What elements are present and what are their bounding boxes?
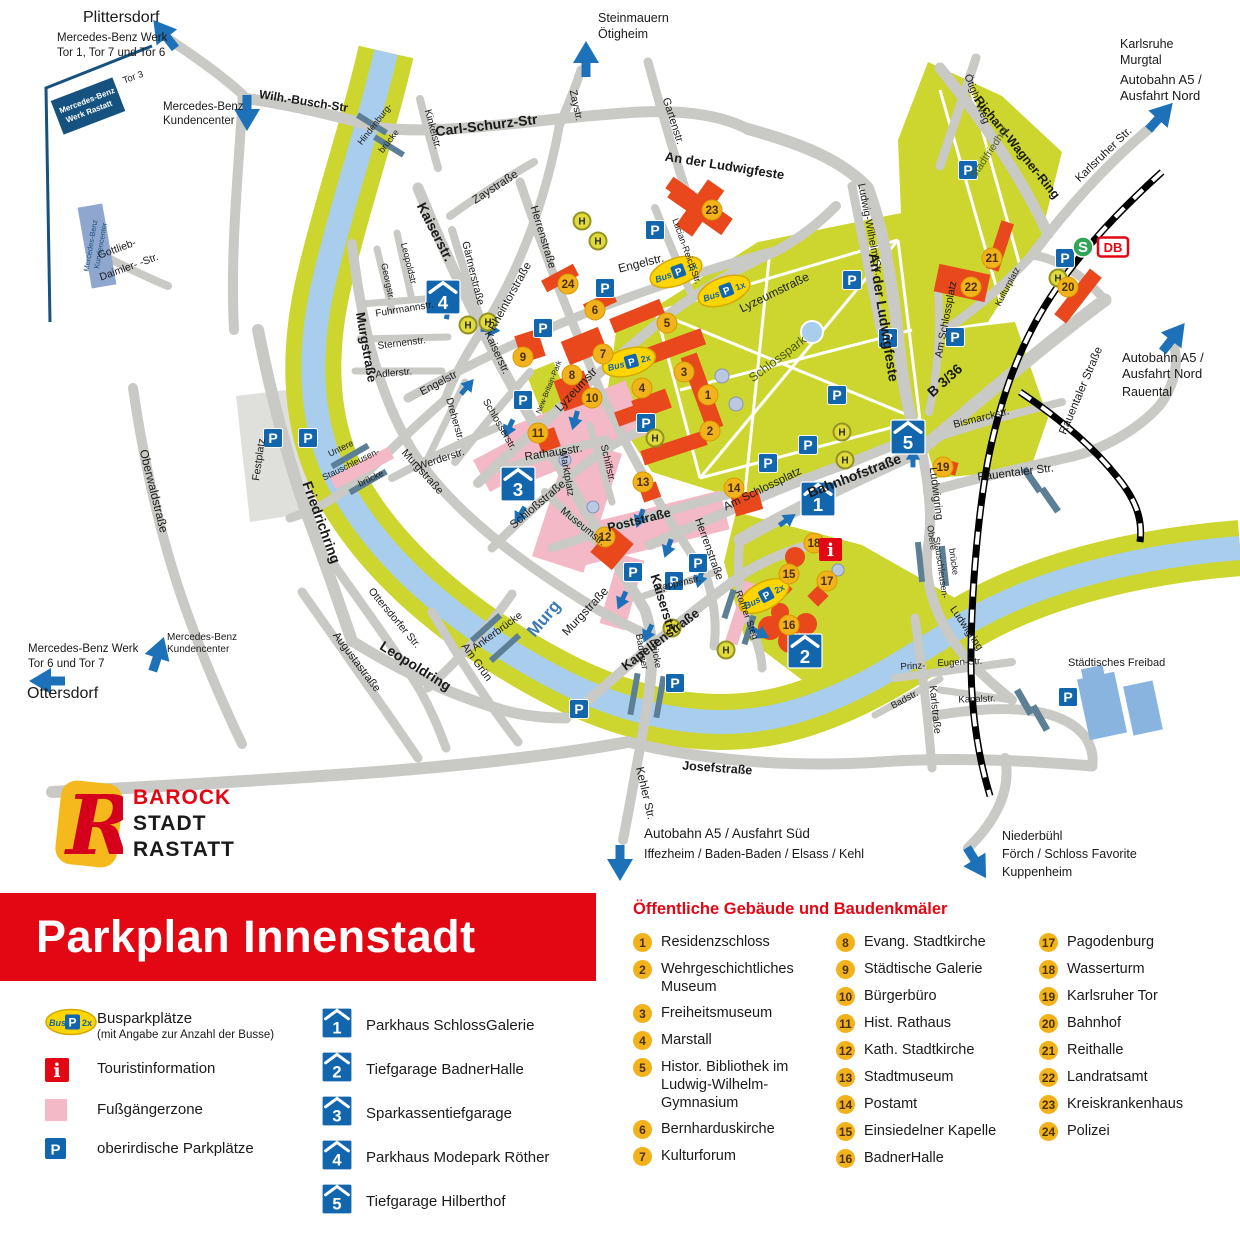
street-label-8: Zaystraße — [470, 168, 520, 206]
building-label: Histor. Bibliothek im Ludwig-Wilhelm-Gym… — [661, 1058, 822, 1112]
building-list-item-15: 15Einsiedelner Kapelle — [836, 1122, 1025, 1141]
garage-label: Sparkassentiefgarage — [366, 1105, 512, 1122]
svg-text:2x: 2x — [82, 1018, 92, 1028]
parking-icon-12: P — [843, 271, 862, 290]
building-list-item-13: 13Stadtmuseum — [836, 1068, 1025, 1087]
building-number-badge: 21 — [1039, 1041, 1058, 1060]
parking-icon-2: P — [514, 391, 533, 410]
sbahn-letter: S — [1078, 239, 1088, 256]
building-list-item-1: 1Residenzschloss — [633, 933, 822, 952]
road-plittersdorf — [170, 40, 243, 95]
badge-number: 10 — [586, 393, 599, 405]
building-badge-17: 17 — [817, 571, 837, 591]
building-badge-5: 5 — [657, 313, 677, 333]
street-label-79: Kanalstr. — [958, 693, 995, 705]
bus-stop-letter: H — [594, 237, 601, 248]
garage-legend-item-1: 1Parkhaus SchlossGalerie — [322, 1008, 582, 1043]
parking-letter: P — [950, 329, 959, 345]
destination-label-5: Steinmauern — [598, 11, 669, 25]
badge-number: 2 — [707, 426, 713, 438]
building-badge-9: 9 — [513, 347, 533, 367]
building-number-badge: 19 — [1039, 987, 1058, 1006]
parking-icon-11: P — [570, 700, 589, 719]
building-number-badge: 14 — [836, 1095, 855, 1114]
building-label: Wasserturm — [1067, 960, 1145, 979]
destination-label-23: Kundencenter — [167, 644, 230, 655]
bus-stop-icon-1: H — [590, 233, 607, 250]
parking-icon-9: P — [689, 554, 708, 573]
parking-letter: P — [641, 415, 650, 431]
building-number-badge: 23 — [1039, 1095, 1058, 1114]
building-badge-15: 15 — [779, 564, 799, 584]
building-label: Kath. Stadtkirche — [864, 1041, 974, 1060]
building-badge-3: 3 — [674, 362, 694, 382]
db-letters: DB — [1104, 240, 1123, 255]
parking-garage-icon-2: 2 — [788, 634, 822, 668]
building-list-item-2: 2Wehrgeschichtliches Museum — [633, 960, 822, 996]
parking-letter: P — [518, 392, 527, 408]
building-badge-23: 23 — [702, 200, 722, 220]
page-title: Parkplan Innenstadt — [0, 893, 596, 981]
building-list-item-6: 6Bernharduskirche — [633, 1120, 822, 1139]
destination-label-17: Förch / Schloss Favorite — [1002, 847, 1137, 861]
legend-garages: 1Parkhaus SchlossGalerie2Tiefgarage Badn… — [322, 1008, 582, 1228]
building-number-badge: 16 — [836, 1149, 855, 1168]
destination-label-9: Autobahn A5 / — [1120, 72, 1202, 87]
garage-label: Tiefgarage Hilberthof — [366, 1193, 506, 1210]
garage-number: 5 — [903, 432, 913, 453]
svg-text:P: P — [68, 1016, 76, 1030]
badge-number: 17 — [821, 576, 834, 588]
fountain-3 — [587, 501, 599, 513]
building-number-badge: 9 — [836, 960, 855, 979]
building-list-item-23: 23Kreiskrankenhaus — [1039, 1095, 1228, 1114]
badge-number: 5 — [664, 318, 671, 330]
destination-label-12: Ausfahrt Nord — [1122, 366, 1202, 381]
garage-glyph-1: 1 — [322, 1008, 352, 1038]
building-label: Pagodenburg — [1067, 933, 1154, 952]
destination-label-13: Rauental — [1122, 385, 1172, 399]
parking-icon-18: P — [1059, 688, 1078, 707]
garage-number: 2 — [800, 646, 810, 667]
building-list-item-10: 10Bürgerbüro — [836, 987, 1025, 1006]
street-label-18: Adlerstr. — [375, 366, 413, 380]
bus-stop-icon-0: H — [574, 213, 591, 230]
parking-letter: P — [628, 564, 637, 580]
building-number-badge: 10 — [836, 987, 855, 1006]
tourist-info-legend-icon: i — [45, 1058, 69, 1082]
garage-legend-item-4: 4Parkhaus Modepark Röther — [322, 1140, 582, 1175]
parking-garage-icon-5: 5 — [891, 420, 925, 454]
garage-glyph-4: 4 — [322, 1140, 352, 1170]
garage-icon-3: 3 — [322, 1096, 366, 1131]
street-label-43: Oberwaldstraße — [137, 448, 171, 535]
badge-number: 22 — [965, 282, 978, 294]
building-number-badge: 7 — [633, 1147, 652, 1166]
street-label-58: brücke — [947, 548, 961, 576]
garage-label: Parkhaus SchlossGalerie — [366, 1017, 534, 1034]
building-badge-2: 2 — [700, 421, 720, 441]
parking-letter: P — [600, 280, 609, 296]
building-number-badge: 12 — [836, 1041, 855, 1060]
garage-icon-5: 5 — [322, 1184, 366, 1219]
badge-number: 21 — [986, 253, 999, 265]
building-list-item-12: 12Kath. Stadtkirche — [836, 1041, 1025, 1060]
badge-number: 1 — [705, 390, 712, 402]
rastatt-logo-text: BAROCK STADT RASTATT — [133, 785, 235, 864]
garage-number: 3 — [513, 479, 523, 500]
building-badge-4: 4 — [632, 378, 652, 398]
building-label: Hist. Rathaus — [864, 1014, 951, 1033]
building-list-item-19: 19Karlsruher Tor — [1039, 987, 1228, 1006]
garage-label: Tiefgarage BadnerHalle — [366, 1061, 524, 1078]
bus-stop-letter: H — [838, 428, 845, 439]
parking-letter: P — [303, 430, 312, 446]
garage-number: 4 — [438, 292, 449, 313]
building-label: Wehrgeschichtliches Museum — [661, 960, 822, 996]
building-badge-13: 13 — [633, 472, 653, 492]
sbahn-icon: S — [1073, 237, 1093, 257]
garage-number: 1 — [332, 1020, 341, 1038]
badge-number: 3 — [681, 367, 687, 379]
svg-text:i: i — [53, 1060, 60, 1082]
info-letter: i — [827, 540, 834, 561]
building-number-badge: 8 — [836, 933, 855, 952]
building-list-item-17: 17Pagodenburg — [1039, 933, 1228, 952]
building-list-item-21: 21Reithalle — [1039, 1041, 1228, 1060]
building-badge-22: 22 — [961, 277, 981, 297]
building-label: Landratsamt — [1067, 1068, 1148, 1087]
destination-label-0: Plittersdorf — [83, 9, 160, 26]
parking-letter: P — [1060, 250, 1069, 266]
building-number-badge: 4 — [633, 1031, 652, 1050]
building-list-item-8: 8Evang. Stadtkirche — [836, 933, 1025, 952]
badge-number: 4 — [639, 383, 646, 395]
building-number-badge: 6 — [633, 1120, 652, 1139]
logo-line2: STADT — [133, 811, 235, 837]
bridge-flange-13 — [1039, 487, 1061, 514]
db-icon: DB — [1098, 238, 1128, 257]
building-number-badge: 13 — [836, 1068, 855, 1087]
destination-label-11: Autobahn A5 / — [1122, 350, 1204, 365]
destination-label-2: Tor 1, Tor 7 und Tor 6 — [57, 47, 165, 59]
badge-number: 18 — [808, 538, 821, 550]
building-number-badge: 24 — [1039, 1122, 1058, 1141]
parkplan-page: Mercedes-BenzWerk RastattMercedes-BenzKu… — [0, 0, 1240, 1240]
building-number-badge: 2 — [633, 960, 652, 979]
building-label: Marstall — [661, 1031, 712, 1050]
parking-icon-5: P — [646, 221, 665, 240]
legend-item-label: Touristinformation — [97, 1058, 215, 1077]
building-badge-24: 24 — [558, 274, 578, 294]
legend-item-label: oberirdische Parkplätze — [97, 1138, 254, 1157]
bus-stop-icon-5: H — [834, 424, 851, 441]
badge-number: 6 — [592, 305, 598, 317]
parking-letter: P — [693, 555, 702, 571]
building-number-badge: 18 — [1039, 960, 1058, 979]
legend-item-label: Busparkplätze(mit Angabe zur Anzahl der … — [97, 1008, 274, 1041]
p-icon: P — [45, 1138, 97, 1159]
building-number-badge: 1 — [633, 933, 652, 952]
street-label-80: Prinz- — [900, 660, 925, 672]
street-label-76: Rauentaler Straße — [1057, 345, 1105, 436]
zone-icon — [45, 1099, 97, 1121]
destination-label-14: Autobahn A5 / Ausfahrt Süd — [644, 826, 810, 841]
building-list-item-3: 3Freiheitsmuseum — [633, 1004, 822, 1023]
street-label-60: Murg — [523, 596, 564, 640]
building-label: Polizei — [1067, 1122, 1110, 1141]
parking-letter: P — [1063, 689, 1072, 705]
badge-number: 7 — [600, 349, 606, 361]
garage-glyph-5: 5 — [322, 1184, 352, 1214]
destination-label-18: Kuppenheim — [1002, 865, 1072, 879]
page-title-text: Parkplan Innenstadt — [36, 911, 476, 963]
building-list-item-16: 16BadnerHalle — [836, 1149, 1025, 1168]
street-label-1: Carl-Schurz-Str — [434, 111, 538, 139]
building-badge-6: 6 — [585, 300, 605, 320]
building-label: Reithalle — [1067, 1041, 1123, 1060]
buildings-directory-title: Öffentliche Gebäude und Baudenkmäler — [633, 900, 1228, 919]
bus-stop-icon-6: H — [837, 452, 854, 469]
logo-line3: RASTATT — [133, 837, 235, 863]
building-label: Freiheitsmuseum — [661, 1004, 772, 1023]
bus-stop-letter: H — [464, 321, 471, 332]
buildings-column-1: 1Residenzschloss2Wehrgeschichtliches Mus… — [633, 933, 822, 1176]
parking-letter: P — [268, 430, 277, 446]
buildings-column-3: 17Pagodenburg18Wasserturm19Karlsruher To… — [1039, 933, 1228, 1176]
buildings-directory: Öffentliche Gebäude und Baudenkmäler 1Re… — [633, 900, 1228, 1176]
building-label: Residenzschloss — [661, 933, 770, 952]
building-label: Bahnhof — [1067, 1014, 1121, 1033]
svg-text:R: R — [64, 778, 123, 870]
building-label: Karlsruher Tor — [1067, 987, 1158, 1006]
bus-stop-letter: H — [651, 434, 658, 445]
direction-arrow-6 — [956, 841, 997, 885]
building-list-item-7: 7Kulturforum — [633, 1147, 822, 1166]
garage-glyph-2: 2 — [322, 1052, 352, 1082]
destination-label-6: Ötigheim — [598, 27, 648, 41]
parking-icon-20: P — [759, 454, 778, 473]
building-badge-11: 11 — [528, 423, 548, 443]
building-label: Bürgerbüro — [864, 987, 937, 1006]
building-list-item-9: 9Städtische Galerie — [836, 960, 1025, 979]
building-badge-7: 7 — [593, 344, 613, 364]
destination-label-19: Mercedes-Benz Werk — [28, 643, 139, 655]
building-number-badge: 22 — [1039, 1068, 1058, 1087]
city-map: Mercedes-BenzWerk RastattMercedes-BenzKu… — [0, 0, 1240, 895]
road-mercedes-nord — [233, 95, 243, 330]
parking-letter: P — [803, 437, 812, 453]
parking-letter: P — [832, 387, 841, 403]
garage-legend-item-2: 2Tiefgarage BadnerHalle — [322, 1052, 582, 1087]
building-label: BadnerHalle — [864, 1149, 944, 1168]
building-list-item-24: 24Polizei — [1039, 1122, 1228, 1141]
destination-label-24: Städtisches Freibad — [1068, 657, 1165, 669]
building-list-item-5: 5Histor. Bibliothek im Ludwig-Wilhelm-Gy… — [633, 1058, 822, 1112]
info-icon: i — [45, 1058, 97, 1082]
building-label: Evang. Stadtkirche — [864, 933, 986, 952]
building-number-badge: 20 — [1039, 1014, 1058, 1033]
parking-icon-10: P — [666, 674, 685, 693]
destination-label-1: Mercedes-Benz Werk — [57, 32, 168, 44]
badge-number: 13 — [637, 477, 650, 489]
building-label: Kulturforum — [661, 1147, 736, 1166]
parking-icon-4: P — [596, 279, 615, 298]
building-label: Bernharduskirche — [661, 1120, 775, 1139]
building-label: Einsiedelner Kapelle — [864, 1122, 996, 1141]
garage-number: 3 — [332, 1108, 341, 1126]
badge-number: 16 — [783, 620, 796, 632]
rastatt-logo-mark: R — [28, 778, 123, 870]
destination-label-10: Ausfahrt Nord — [1120, 88, 1200, 103]
garage-legend-svg-3: 3 — [322, 1096, 352, 1126]
buildings-columns: 1Residenzschloss2Wehrgeschichtliches Mus… — [633, 933, 1228, 1176]
parking-letter: P — [670, 675, 679, 691]
destination-label-15: Iffezheim / Baden-Baden / Elsass / Kehl — [644, 847, 864, 861]
bus-stop-icon-8: H — [718, 642, 735, 659]
building-badge-1: 1 — [698, 385, 718, 405]
destination-label-4: Kundencenter — [163, 115, 235, 127]
road-oberwaldstrasse — [133, 388, 242, 744]
bus-stop-letter: H — [841, 456, 848, 467]
legend-item-label: Fußgängerzone — [97, 1099, 203, 1118]
pedestrian-zone-legend-icon — [45, 1099, 67, 1121]
building-label: Stadtmuseum — [864, 1068, 953, 1087]
tourist-info-icon: i — [819, 538, 842, 561]
legend-item-info: iTouristinformation — [45, 1058, 305, 1082]
building-list-item-14: 14Postamt — [836, 1095, 1025, 1114]
freibad-building-1 — [1123, 680, 1163, 735]
garage-legend-svg-5: 5 — [322, 1184, 352, 1214]
legend-symbols: BusP2xBusparkplätze(mit Angabe zur Anzah… — [45, 1008, 305, 1176]
garage-legend-svg-1: 1 — [322, 1008, 352, 1038]
building-number-badge: 3 — [633, 1004, 652, 1023]
logo-line1: BAROCK — [133, 785, 235, 811]
badge-number: 20 — [1062, 282, 1075, 294]
svg-text:P: P — [50, 1142, 60, 1159]
garage-number: 2 — [332, 1064, 341, 1082]
building-badge-16: 16 — [779, 615, 799, 635]
parking-garage-icon-3: 3 — [501, 467, 535, 501]
road-niederbuehl — [968, 758, 1007, 848]
garage-legend-svg-2: 2 — [322, 1052, 352, 1082]
destination-label-3: Mercedes-Benz — [163, 101, 244, 113]
building-list-item-4: 4Marstall — [633, 1031, 822, 1050]
legend-item-zone: Fußgängerzone — [45, 1099, 305, 1121]
parking-letter: P — [574, 701, 583, 717]
parking-icon-1: P — [299, 429, 318, 448]
bus-stop-icon-4: H — [647, 430, 664, 447]
fountain-0 — [715, 369, 729, 383]
building-label: Postamt — [864, 1095, 917, 1114]
building-list-item-20: 20Bahnhof — [1039, 1014, 1228, 1033]
buildings-column-2: 8Evang. Stadtkirche9Städtische Galerie10… — [836, 933, 1025, 1176]
barock-stadt-rastatt-logo: R BAROCK STADT RASTATT — [28, 778, 235, 870]
badge-number: 23 — [706, 205, 719, 217]
direction-arrow-5 — [607, 845, 633, 881]
parking-letter: P — [763, 455, 772, 471]
badge-number: 15 — [783, 569, 796, 581]
building-list-item-22: 22Landratsamt — [1039, 1068, 1228, 1087]
building-number-badge: 5 — [633, 1058, 652, 1077]
garage-number: 5 — [332, 1196, 341, 1214]
garage-number: 4 — [332, 1152, 342, 1170]
badge-number: 11 — [532, 428, 545, 440]
garage-icon-2: 2 — [322, 1052, 366, 1087]
badge-number: 24 — [562, 279, 575, 291]
parking-letter: P — [847, 272, 856, 288]
bus-icon: BusP2x — [45, 1008, 97, 1036]
street-label-81: Eugen-Str. — [937, 656, 982, 669]
parking-icon-7: P — [624, 563, 643, 582]
fountain-1 — [729, 397, 743, 411]
destination-label-21: Ottersdorf — [27, 685, 99, 702]
street-label-83: Tor 3 — [121, 69, 145, 87]
garage-icon-1: 1 — [322, 1008, 366, 1043]
destination-label-8: Murgtal — [1120, 53, 1162, 67]
building-badge-10: 10 — [582, 388, 602, 408]
destination-label-20: Tor 6 und Tor 7 — [28, 658, 105, 670]
building-label: Städtische Galerie — [864, 960, 982, 979]
garage-legend-item-5: 5Tiefgarage Hilberthof — [322, 1184, 582, 1219]
garage-legend-item-3: 3Sparkassentiefgarage — [322, 1096, 582, 1131]
surface-parking-legend-icon: P — [45, 1138, 66, 1159]
legend-item-bus: BusP2xBusparkplätze(mit Angabe zur Anzah… — [45, 1008, 305, 1041]
bus-stop-letter: H — [578, 217, 585, 228]
building-list-item-11: 11Hist. Rathaus — [836, 1014, 1025, 1033]
bus-parking-legend-icon: BusP2x — [45, 1008, 97, 1036]
building-label: Kreiskrankenhaus — [1067, 1095, 1183, 1114]
garage-glyph-3: 3 — [322, 1096, 352, 1126]
svg-text:Bus: Bus — [49, 1018, 66, 1028]
legend-item-p: Poberirdische Parkplätze — [45, 1138, 305, 1159]
parking-icon-17: P — [1056, 249, 1075, 268]
badge-number: 9 — [520, 352, 526, 364]
legend-item-note: (mit Angabe zur Anzahl der Busse) — [97, 1029, 274, 1041]
garage-label: Parkhaus Modepark Röther — [366, 1149, 549, 1166]
building-list-item-18: 18Wasserturm — [1039, 960, 1228, 979]
parking-icon-19: P — [799, 436, 818, 455]
garage-icon-4: 4 — [322, 1140, 366, 1175]
bus-stop-icon-2: H — [460, 317, 477, 334]
building-badge-20: 20 — [1058, 277, 1078, 297]
building-number-badge: 17 — [1039, 933, 1058, 952]
building-number-badge: 11 — [836, 1014, 855, 1033]
destination-label-16: Niederbühl — [1002, 829, 1062, 843]
destination-label-7: Karlsruhe — [1120, 37, 1174, 51]
parking-letter: P — [650, 222, 659, 238]
building-badge-21: 21 — [982, 248, 1002, 268]
parking-icon-3: P — [534, 319, 553, 338]
garage-legend-svg-4: 4 — [322, 1140, 352, 1170]
parking-icon-16: P — [828, 386, 847, 405]
parking-letter: P — [538, 320, 547, 336]
building-number-badge: 15 — [836, 1122, 855, 1141]
destination-label-22: Mercedes-Benz — [167, 632, 237, 643]
bus-stop-letter: H — [722, 646, 729, 657]
